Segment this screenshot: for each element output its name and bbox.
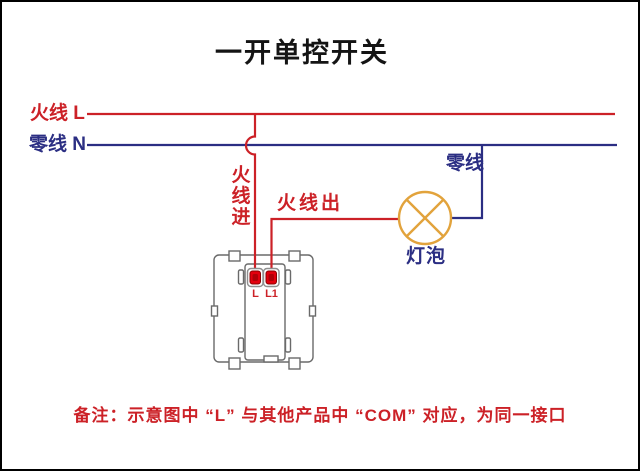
label-terminal-l1: L1 [262, 288, 281, 300]
switch-bottom-tab [264, 356, 278, 362]
label-neutral-left: 零线 N [29, 135, 86, 156]
switch-slot-bottom-left [239, 338, 244, 352]
switch-tab-bottom-right [289, 358, 300, 369]
switch-slot-top-right [286, 270, 291, 284]
footer-note: 备注：示意图中 “L” 与其他产品中 “COM” 对应，为同一接口 [2, 401, 638, 426]
lamp-icon [399, 192, 451, 244]
label-terminal-l: L [248, 288, 263, 300]
switch-terminals [248, 269, 280, 287]
label-neutral-right: 零线 [446, 154, 484, 175]
switch-slot-bottom-right [286, 338, 291, 352]
terminal-l1-core [269, 274, 275, 281]
wiring-diagram: 一开单控开关 火线 L 零线 N 火线进 火线出 零线 灯泡 L L1 备注：示… [0, 0, 640, 471]
switch-notch-right [310, 306, 316, 316]
switch-notch-left [212, 306, 218, 316]
switch-tab-bottom-left [229, 358, 240, 369]
label-live-left: 火线 L [30, 104, 85, 125]
switch-icon [212, 251, 316, 369]
switch-slot-top-left [239, 270, 244, 284]
label-lamp: 灯泡 [406, 247, 446, 268]
circuit-svg [2, 2, 638, 469]
label-live-in: 火线进 [230, 165, 252, 228]
switch-tab-top-left [229, 251, 240, 261]
page-title: 一开单控开关 [0, 31, 620, 70]
label-live-out: 火线出 [277, 194, 343, 215]
terminal-l-core [253, 274, 259, 281]
switch-tab-top-right [289, 251, 300, 261]
